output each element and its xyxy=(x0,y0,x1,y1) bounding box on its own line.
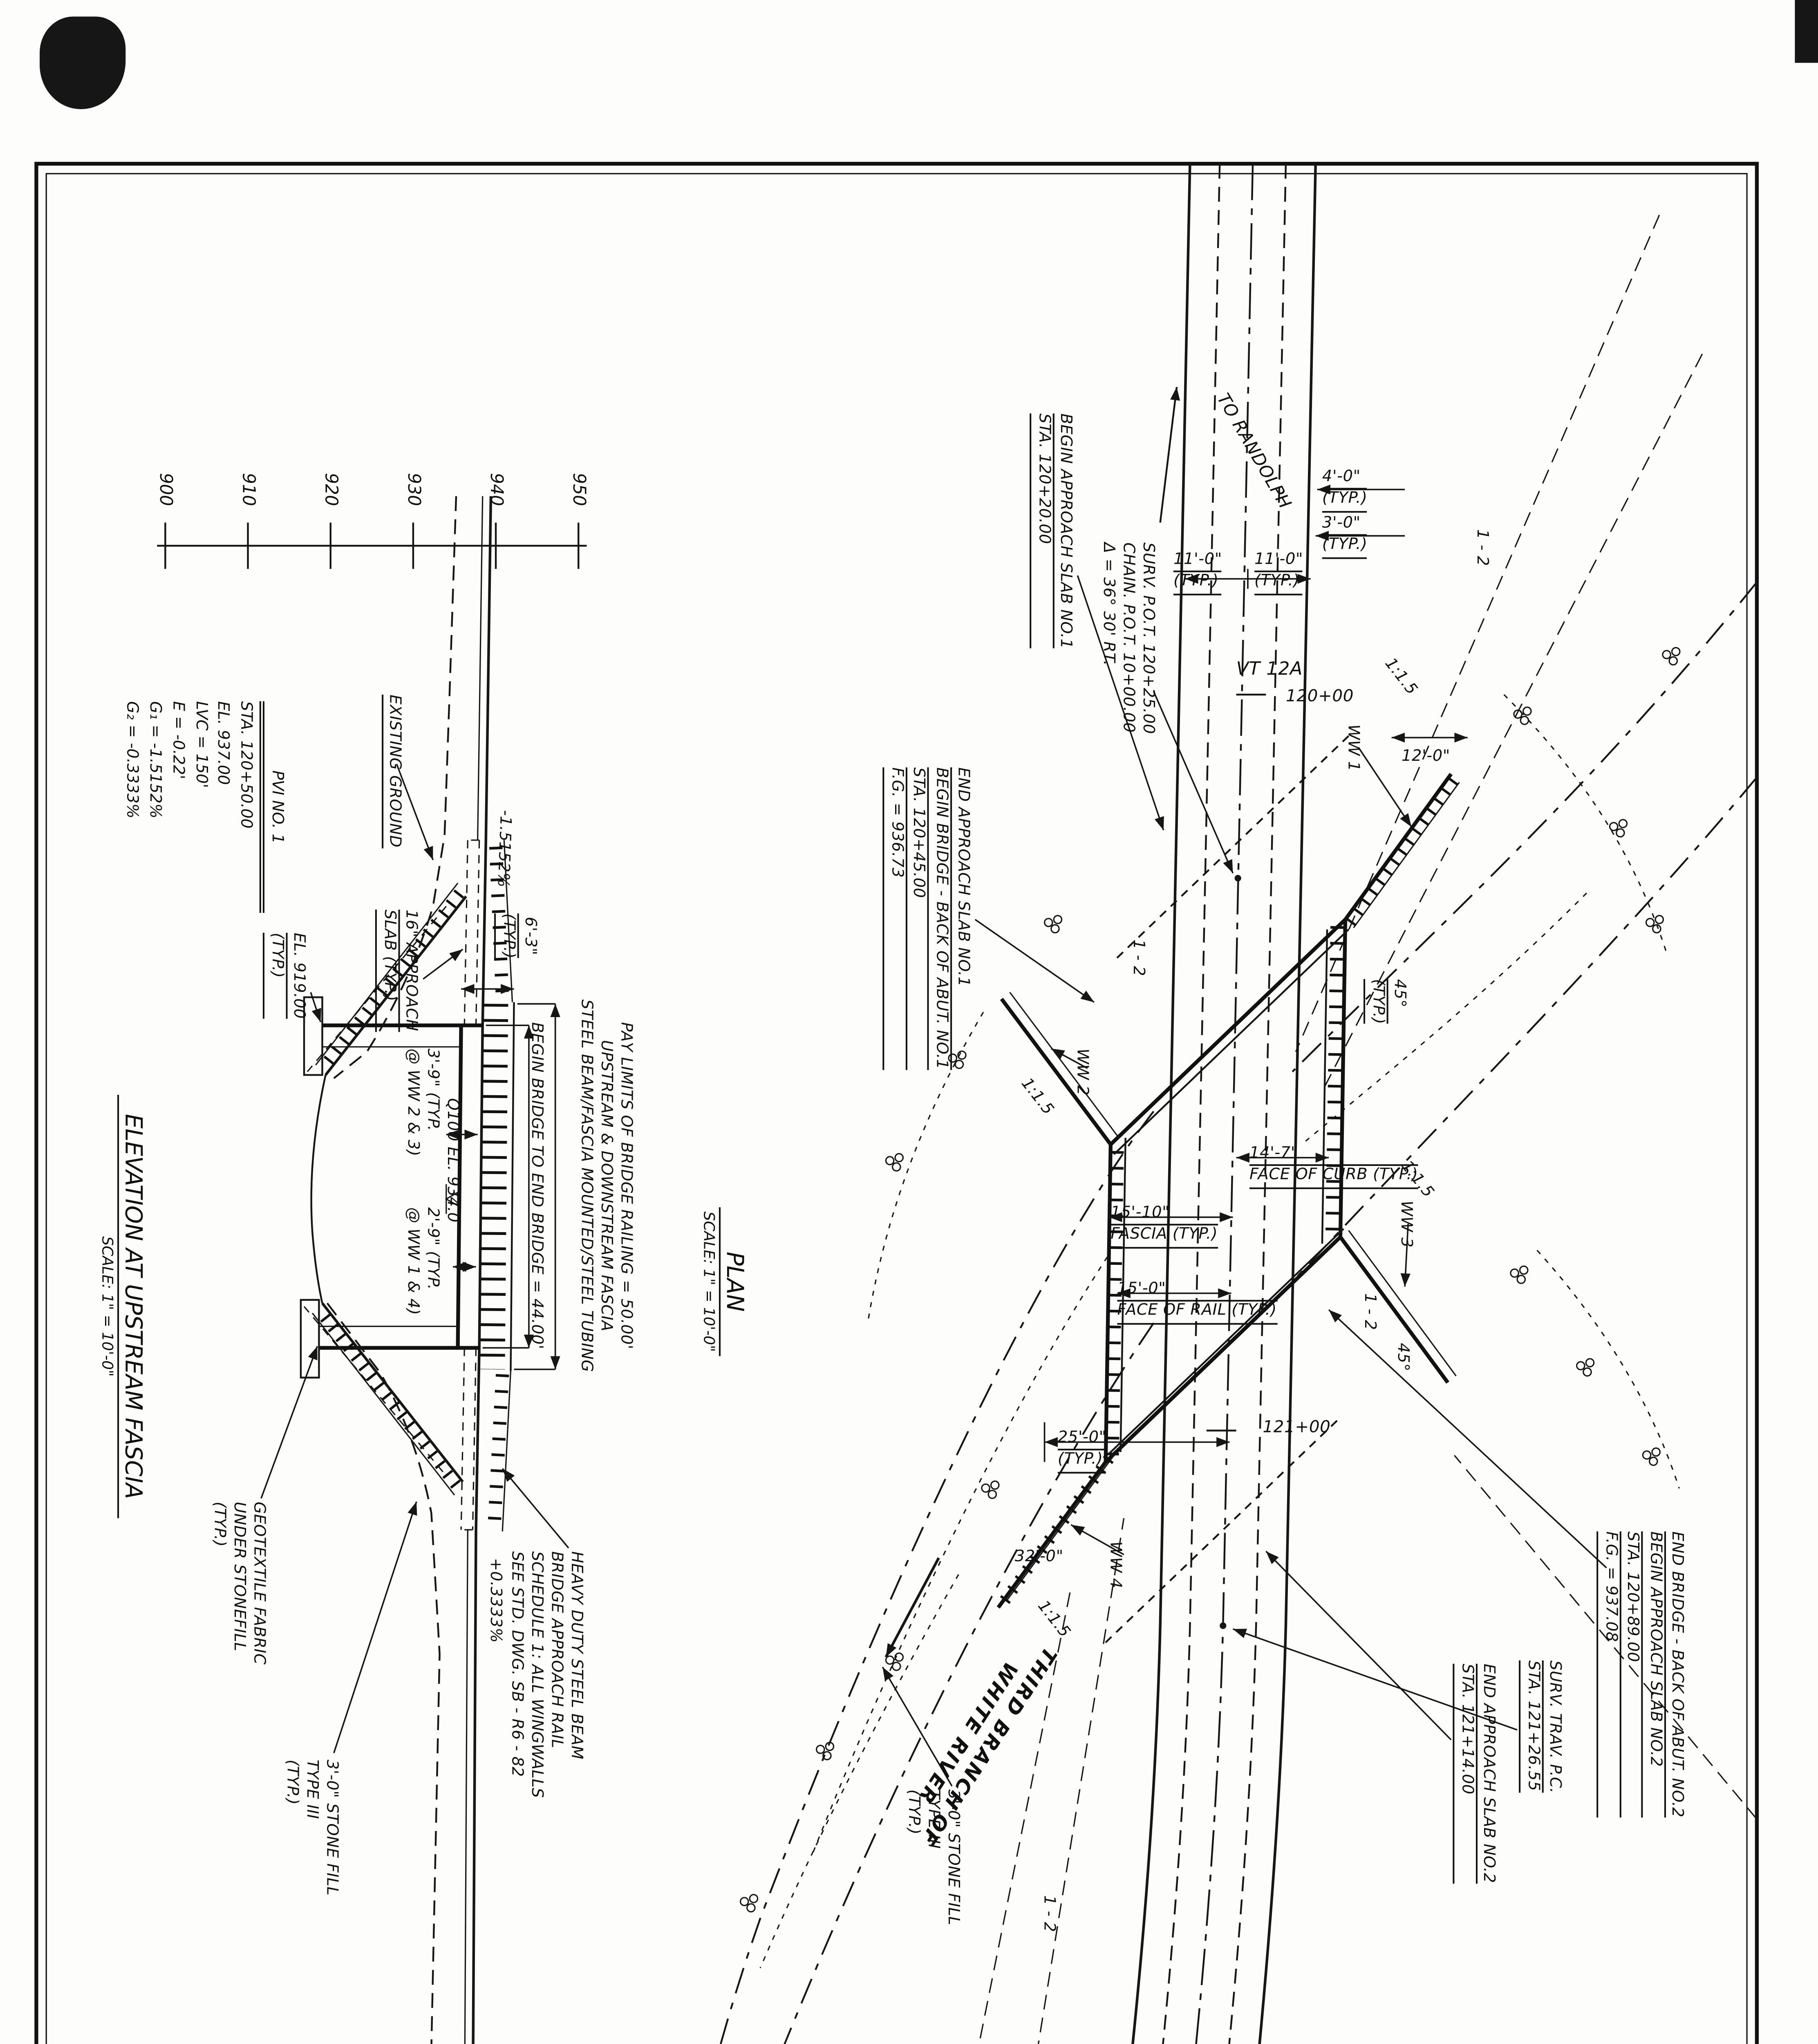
ww4-label: WW 4 xyxy=(1104,1541,1124,1588)
ww3-label: WW 3 xyxy=(1395,1201,1415,1248)
begin-approach-slab-1-note: BEGIN APPROACH SLAB NO.1STA. 120+20.00 xyxy=(1030,413,1074,649)
elevation-ruler-value: 930 xyxy=(404,473,421,506)
elevation-ruler-value: 940 xyxy=(487,473,504,506)
elevation-ruler-value: 920 xyxy=(321,473,338,506)
dim-4-0-label: 4'-0"(TYP.) xyxy=(1322,468,1368,512)
dim-32-0-label: 32'-0" xyxy=(1015,1548,1063,1568)
scan-edge-mark xyxy=(1795,0,1818,63)
dim-2-9-label: 2'-9" (TYP.@ WW 1 & 4) xyxy=(402,1207,441,1315)
pvi-data-row: E = -0.22' xyxy=(166,701,188,913)
to-randolph-arrow-icon xyxy=(1160,387,1177,523)
elevation-scale-text: SCALE: 1" = 10'-0" xyxy=(98,1095,118,1518)
geotextile-note: GEOTEXTILE FABRICUNDER STONEFILL(TYP.) xyxy=(209,1502,268,1665)
elevation-title-text: ELEVATION AT UPSTREAM FASCIA xyxy=(117,1095,146,1518)
scanned-drawing-sheet: TO RANDOLPHBEGIN APPROACH SLAB NO.1STA. … xyxy=(0,0,1818,2044)
ww1-label: WW 1 xyxy=(1342,724,1362,771)
slope-1-2-d-label: 1 - 2 xyxy=(1038,1895,1058,1932)
surv-pot-note: SURV. P.O.T. 120+25.00CHAIN. P.O.T. 10+0… xyxy=(1098,542,1157,734)
drawing-stage: TO RANDOLPHBEGIN APPROACH SLAB NO.1STA. … xyxy=(0,0,1818,2044)
elevation-ruler-value: 900 xyxy=(156,473,173,506)
dim-15-0-label: 15'-0"FACE OF RAIL (TYP.) xyxy=(1117,1280,1276,1324)
slope-1-2-b-label: 1 - 2 xyxy=(1127,939,1147,976)
approach-slab-label: 16" APPROACHSLAB (TYP.) xyxy=(376,910,420,1031)
pvi-data-row: STA. 120+50.00 xyxy=(234,701,257,913)
elevation-view-title: ELEVATION AT UPSTREAM FASCIA SCALE: 1" =… xyxy=(98,1095,146,1518)
plan-view-title: PLAN SCALE: 1" = 10'-0" xyxy=(699,1207,747,1356)
end-bridge-2-note: END BRIDGE - BACK OF ABUT. NO.2BEGIN APP… xyxy=(1597,1531,1686,1818)
dim-14-7-label: 14'-7"FACE OF CURB (TYP.) xyxy=(1249,1144,1418,1188)
pvi-data-row: G₁ = -1.5152% xyxy=(143,701,166,913)
dim-11-0-left-label: 11'-0"(TYP.) xyxy=(1254,551,1303,595)
existing-ground-label: EXISTING GROUND xyxy=(381,695,403,847)
dim-12-0-label: 12'-0" xyxy=(1402,748,1450,767)
dim-25-0-label: 25'-0"(TYP.) xyxy=(1058,1429,1106,1473)
slope-1-2-c-label: 1 - 2 xyxy=(1359,1293,1378,1330)
grade-g1-label: -1.5152% xyxy=(492,810,514,888)
end-approach-slab-1-note: END APPROACH SLAB NO.1BEGIN BRIDGE - BAC… xyxy=(883,767,972,1069)
road-name-label: VT 12A xyxy=(1236,658,1303,681)
grade-g2-label: +0.3333% xyxy=(484,1558,504,1643)
el-919-label: EL. 919.00(TYP.) xyxy=(263,933,307,1019)
dim-6-3-label: 6'-3"(TYP.) xyxy=(495,913,539,959)
pvi-data-row: G₂ = -0.3333% xyxy=(120,701,143,913)
surv-trav-pc-note: SURV. TRAV. P.C.STA. 121+26.55 xyxy=(1519,1661,1563,1793)
slope-1-2-a-label: 1 - 2 xyxy=(1471,529,1491,566)
dim-3-9-label: 3'-9" (TYP.@ WW 2 & 3) xyxy=(402,1049,441,1156)
plan-title-text: PLAN xyxy=(719,1207,747,1356)
heavy-duty-rail-note: HEAVY DUTY STEEL BEAMBRIDGE APPROACH RAI… xyxy=(506,1551,585,1798)
stone-fill-elev-note: 3'-0" STONE FILLTYPE III(TYP.) xyxy=(282,1759,340,1896)
dim-11-0-right-label: 11'-0"(TYP.) xyxy=(1173,551,1222,595)
dim-15-10-label: 15'-10"FASCIA (TYP.) xyxy=(1111,1204,1218,1248)
elevation-ruler-value: 950 xyxy=(569,473,587,506)
plan-view-linework xyxy=(674,164,1757,2044)
river-flow-arrow-icon xyxy=(886,1558,938,1657)
sta-121-label: 121+00 xyxy=(1263,1419,1330,1440)
sta-120-label: 120+00 xyxy=(1286,688,1354,709)
stone-fill-plan-note: 3'-0" STONE FILLTYPE III(TYP.) xyxy=(903,1789,962,1925)
plan-scale-text: SCALE: 1" = 10'-0" xyxy=(699,1207,719,1356)
angle-45-a-label: 45°(TYP.) xyxy=(1364,979,1408,1024)
elevation-ruler-value: 910 xyxy=(239,473,256,506)
pvi-data-row: EL. 937.00 xyxy=(211,701,234,913)
angle-45-b-label: 45° xyxy=(1392,1343,1411,1372)
end-approach-slab-2-note: END APPROACH SLAB NO.2STA. 121+14.00 xyxy=(1453,1664,1497,1883)
pvi-data-row: LVC = 150' xyxy=(188,701,211,913)
ww2-label: WW 2 xyxy=(1071,1049,1091,1096)
q100-label: Q100 EL. 934.0 xyxy=(441,1098,461,1222)
pvi-table-header: PVI NO. 1 xyxy=(260,701,288,913)
pvi-data-table: PVI NO. 1 STA. 120+50.00EL. 937.00LVC = … xyxy=(120,701,288,913)
pay-limits-note: PAY LIMITS OF BRIDGE RAILING = 50.00'UPS… xyxy=(576,1000,635,1372)
begin-end-bridge-note: BEGIN BRIDGE TO END BRIDGE = 44.00' xyxy=(526,1022,545,1349)
dim-3-0-label: 3'-0"(TYP.) xyxy=(1322,514,1368,558)
